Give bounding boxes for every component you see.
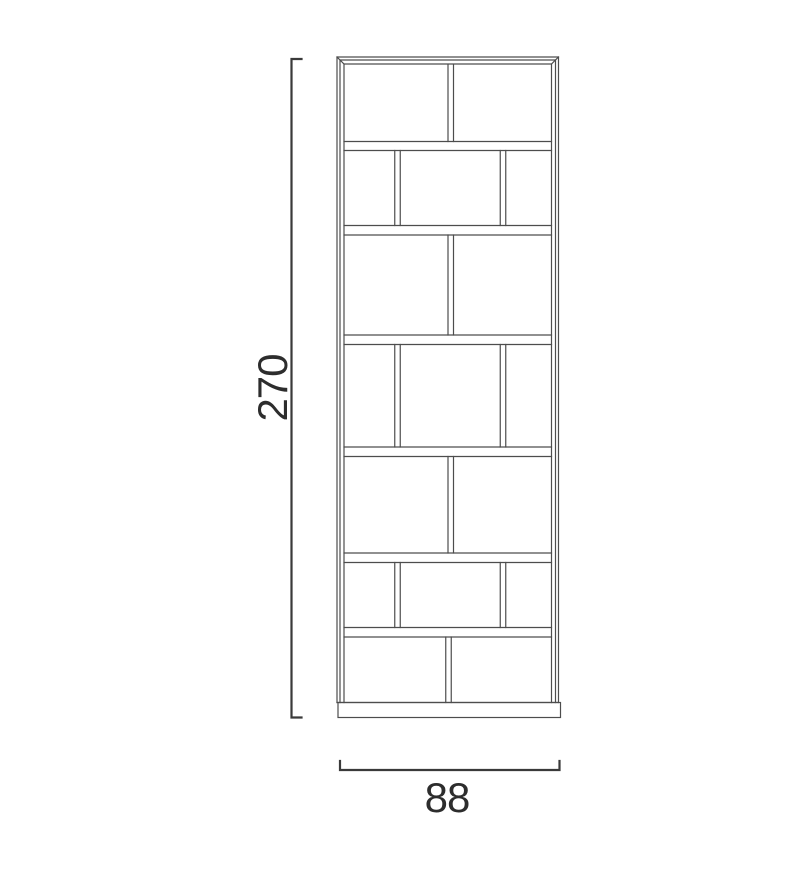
shelf-outer-frame (337, 57, 559, 703)
width-dimension-label: 88 (425, 774, 470, 821)
shelf-mid-frame (340, 60, 556, 703)
bookshelf-dimension-diagram: 270 88 (0, 0, 811, 869)
dimension-lines (292, 59, 560, 770)
shelf-plinth (338, 703, 561, 718)
width-dimension-line (340, 761, 560, 770)
shelf-structure (337, 57, 561, 718)
diagram-canvas: 270 88 (0, 0, 811, 869)
shelf-inner-frame (344, 64, 552, 703)
height-dimension-label: 270 (249, 354, 296, 421)
